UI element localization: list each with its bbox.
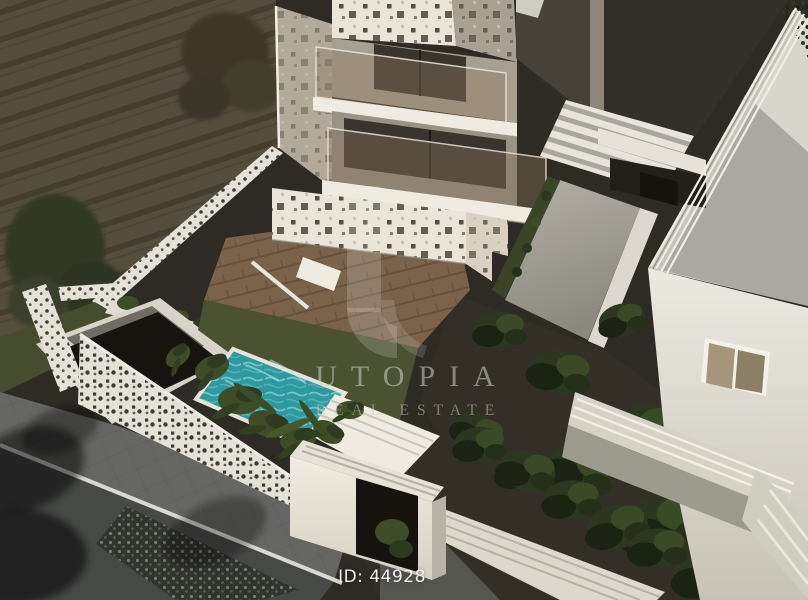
scene-canvas — [0, 0, 808, 600]
watermark-brand-name: UTOPIA — [254, 360, 556, 394]
rendered-photo: UTOPIA REAL ESTATE ID: 44928 — [0, 0, 808, 600]
watermark-brand-subtitle: REAL ESTATE — [254, 402, 556, 420]
listing-id-label: ID: 44928 — [302, 567, 462, 587]
